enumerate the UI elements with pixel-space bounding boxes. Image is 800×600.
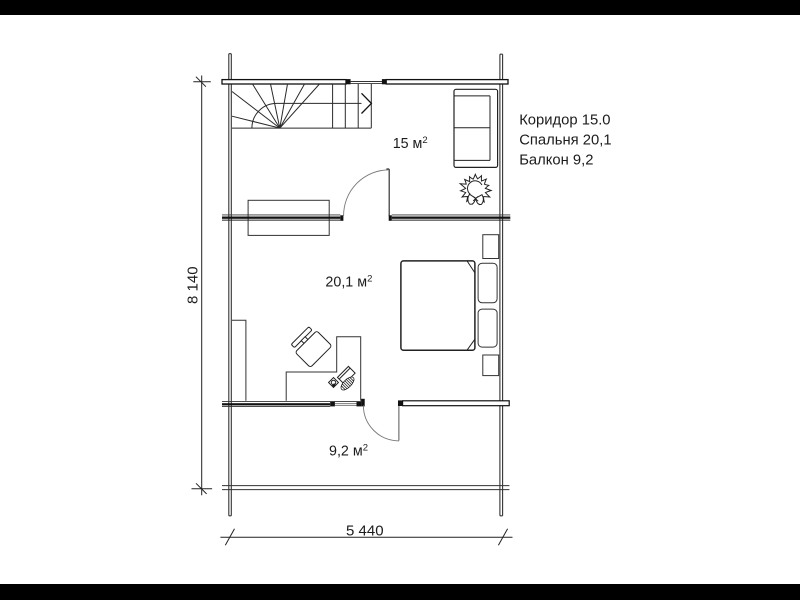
svg-text:Балкон 9,2: Балкон 9,2	[519, 153, 593, 169]
svg-text:8 140: 8 140	[185, 266, 202, 304]
svg-text:15 м2: 15 м2	[393, 135, 428, 152]
svg-text:Коридор 15.0: Коридор 15.0	[519, 112, 610, 128]
svg-text:9,2 м2: 9,2 м2	[329, 443, 368, 460]
svg-text:Спальня 20,1: Спальня 20,1	[519, 132, 611, 148]
svg-text:20,1 м2: 20,1 м2	[325, 274, 372, 291]
svg-text:5 440: 5 440	[346, 523, 384, 540]
